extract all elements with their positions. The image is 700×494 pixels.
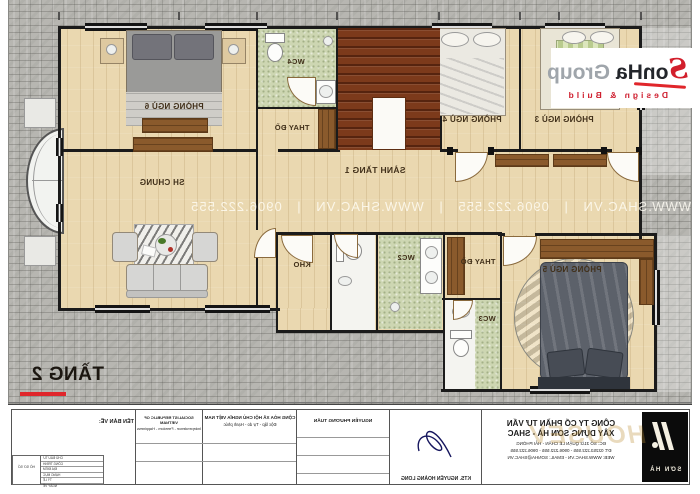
signature-icon (391, 411, 481, 469)
room-label: SẢNH TẦNG 1 (337, 166, 413, 175)
brand-logo-box: SonHaGroup Design & Build (551, 48, 698, 108)
brand-name: onHa (616, 62, 669, 83)
wall-segment (500, 233, 502, 391)
motto-vn-line2: Độc lập - Tự do - Hạnh phúc (204, 422, 296, 427)
dresser (133, 137, 213, 152)
window (95, 305, 150, 313)
dim-tick (520, 12, 522, 20)
toilet-icon (450, 330, 472, 339)
wall-segment (276, 235, 278, 308)
hall-cabinet (553, 154, 607, 167)
wall-segment (376, 233, 378, 332)
room-label: WC4 (278, 58, 314, 66)
dim-tick (641, 12, 643, 20)
room-label: PHÒNG NGỦ 5 (528, 266, 616, 274)
brand-tagline: Design & Build (551, 90, 698, 100)
signature-cell: KTS. NGUYỄN HOÀNG LONG (391, 411, 481, 485)
dim-tick (179, 12, 181, 20)
sink-icon (425, 271, 438, 284)
sonha-logo-text: SƠN HÀ (642, 467, 688, 473)
tb-divider (296, 410, 297, 485)
balcony-left-lower (657, 235, 691, 392)
pillow (174, 34, 214, 60)
pillow (473, 32, 501, 47)
wardrobe (447, 237, 465, 295)
wall-segment (276, 308, 278, 332)
tb-mini-row: NGÀY VẼ (41, 484, 103, 489)
chief-architect-cell: NGUYỄN PHƯƠNG TUẤN (297, 411, 389, 485)
wall-segment (276, 330, 470, 333)
tb-row-line (297, 437, 389, 438)
sink-icon (338, 276, 352, 286)
terrace-tile (24, 98, 56, 128)
wall-segment (58, 26, 61, 311)
mirrored-drawing: PHÒNG NGỦ 3 PHÒNG NGỦ 4 WC4 THAY ĐỒ PHÒN… (0, 0, 700, 494)
tb-divider (481, 410, 482, 485)
floorplan-sheet: PHÒNG NGỦ 3 PHÒNG NGỦ 4 WC4 THAY ĐỒ PHÒN… (0, 0, 700, 494)
lamp-icon (228, 44, 239, 55)
wardrobe-l-top (540, 239, 654, 259)
tb-mini-table: CHỦ ĐẦU TƯ CÔNG TRÌNH ĐỊA ĐIỂM HẠNG MỤC … (12, 455, 104, 485)
watermark-text: WWW.SHAC.VN | 0906.222.555 | WWW.SHAC.VN… (9, 195, 691, 219)
shower-icon (323, 36, 333, 46)
shower-icon (390, 302, 400, 312)
room-label: PHÒNG NGỦ 4 (434, 116, 510, 124)
room-label: KHO (286, 261, 318, 269)
tb-mini-rows: CHỦ ĐẦU TƯ CÔNG TRÌNH ĐỊA ĐIỂM HẠNG MỤC … (41, 456, 103, 484)
pillow (441, 32, 469, 47)
tb-hs-cell: HỒ SƠ SỐ (13, 456, 41, 484)
tb-divider (135, 410, 136, 485)
hall-cabinet (495, 154, 549, 167)
motto-en-cell: SOCIALIST REPUBLIC OF VIETNAM Independen… (136, 415, 202, 441)
headboard (538, 377, 630, 389)
tb-divider (202, 410, 203, 485)
sink-icon (425, 246, 438, 259)
pillow (562, 31, 586, 44)
dim-tick (59, 12, 61, 20)
wall-segment (256, 258, 258, 310)
wall-segment (278, 149, 340, 152)
dim-tick (559, 12, 561, 20)
motto-vn-line1: CỘNG HÒA XÃ HỘI CHỦ NGHĨA VIỆT NAM (204, 415, 296, 420)
toilet-icon (453, 339, 469, 357)
plant-icon (158, 238, 166, 244)
room-label: WC2 (391, 254, 421, 262)
wardrobe-l-side (639, 259, 654, 305)
stair-landing (372, 97, 406, 150)
window (56, 138, 63, 156)
tb-row-line (297, 473, 389, 474)
room-label: THAY ĐỒ (266, 124, 318, 132)
dim-tick (439, 12, 441, 20)
pillow (584, 348, 623, 380)
wall-segment (535, 233, 657, 236)
room-label: PHÒNG NGỦ 6 (124, 103, 224, 111)
architect-name: KTS. NGUYỄN HOÀNG LONG (391, 476, 481, 482)
tb-row-line (136, 443, 296, 444)
room-label: THAY ĐỒ (452, 258, 504, 266)
lamp-icon (106, 44, 117, 55)
motto-en-line2: Independence - Freedom - Happiness (136, 427, 202, 431)
motto-en-line1: SOCIALIST REPUBLIC OF VIETNAM (136, 415, 202, 425)
gold-watermark: HOUSEV (506, 421, 646, 461)
terrace-tile (24, 236, 56, 266)
armchair (112, 232, 138, 262)
tb-row-line (297, 455, 389, 456)
sonha-logo-box: SƠN HÀ (642, 412, 688, 482)
room-label: PHÒNG NGỦ 3 (526, 116, 602, 124)
divider-line (8, 402, 692, 403)
sofa (126, 264, 208, 292)
pillow (132, 34, 172, 60)
sheet-title-underline (20, 392, 66, 396)
toilet-icon (265, 33, 285, 43)
pillow (546, 348, 585, 379)
tb-row-line (136, 461, 296, 462)
brand-s-glyph: S (669, 56, 689, 83)
dim-tick (337, 12, 339, 20)
brand-group: Group (547, 62, 610, 83)
tb-divider (389, 410, 390, 485)
room-label: WC3 (474, 315, 500, 323)
wall-segment (488, 149, 612, 152)
motto-vn-cell: CỘNG HÒA XÃ HỘI CHỦ NGHĨA VIỆT NAM Độc l… (204, 415, 296, 441)
wardrobe (318, 109, 336, 149)
drawing-name-label: TÊN BẢN VẼ: (54, 419, 134, 431)
title-block: SƠN HÀ CÔNG TY CỔ PHẦN TƯ VẤN XÂY DỰNG S… (8, 404, 692, 488)
door-jamb (447, 147, 453, 155)
dim-tick (257, 12, 259, 20)
sheet-title: TẦNG 2 (8, 364, 104, 386)
room-label: SH CHUNG (134, 179, 190, 187)
pillow (590, 31, 614, 44)
chief-architect-name: NGUYỄN PHƯƠNG TUẤN (297, 411, 389, 424)
wall-segment (519, 26, 521, 151)
window (205, 305, 270, 313)
dresser (142, 118, 208, 133)
bed-blanket (438, 58, 504, 114)
door-jamb (488, 147, 494, 155)
brand-logo-row: SonHaGroup (551, 48, 698, 83)
sink-icon (319, 85, 333, 98)
decor-dot (168, 247, 173, 252)
sonha-logo-mark (642, 412, 688, 462)
armchair (192, 232, 218, 262)
sofa-back (126, 290, 208, 298)
coffee-table (155, 234, 177, 256)
